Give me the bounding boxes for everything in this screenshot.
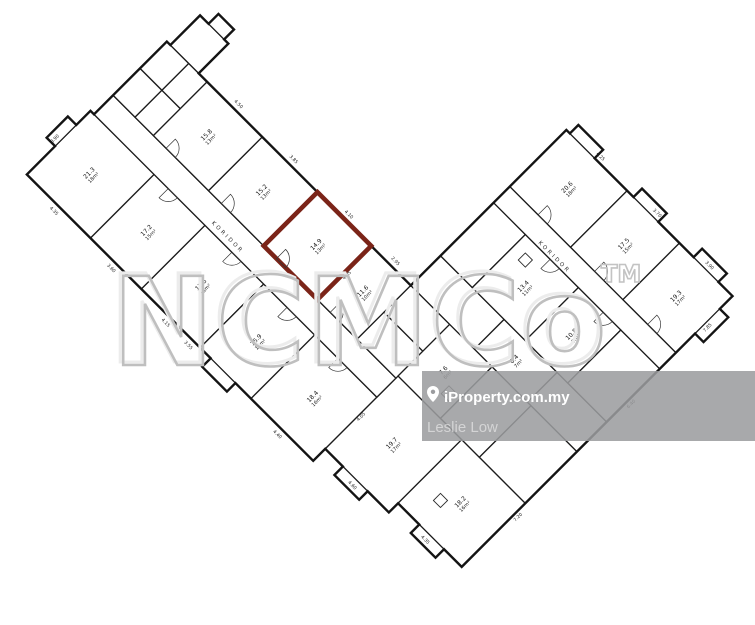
brand-text: iProperty.com.my [444, 389, 570, 406]
floorplan-image: KORIDOR KORIDOR 21.318m² 17.215m² 17.615… [0, 0, 755, 625]
watermark-tm: TM [601, 260, 641, 288]
dim-label: 4.35 [48, 205, 60, 217]
agent-name: Leslie Low [427, 419, 498, 436]
brand-banner: iProperty.com.my Leslie Low [422, 371, 755, 441]
dim-label: 4.40 [271, 429, 283, 441]
floor-plan-svg: KORIDOR KORIDOR 21.318m² 17.215m² 17.615… [0, 0, 755, 625]
